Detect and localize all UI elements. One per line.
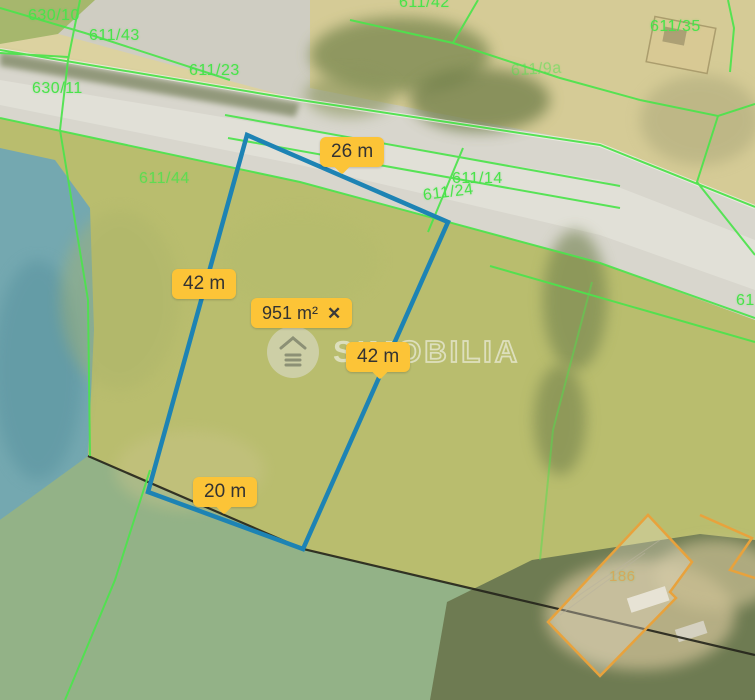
measurement-value: 26 m: [331, 141, 373, 162]
measurement-label-top: 26 m: [320, 137, 384, 167]
map-canvas[interactable]: 630/10 611/43 611/23 630/11 611/42 611/3…: [0, 0, 755, 700]
measurement-value: 42 m: [183, 273, 225, 294]
area-value: 951 m²: [262, 300, 318, 326]
measurement-label-left: 42 m: [172, 269, 236, 299]
measurement-label-right: 42 m: [346, 342, 410, 372]
close-icon[interactable]: ✕: [327, 305, 341, 322]
measurement-label-bottom: 20 m: [193, 477, 257, 507]
area-label: 951 m² ✕: [251, 298, 352, 328]
